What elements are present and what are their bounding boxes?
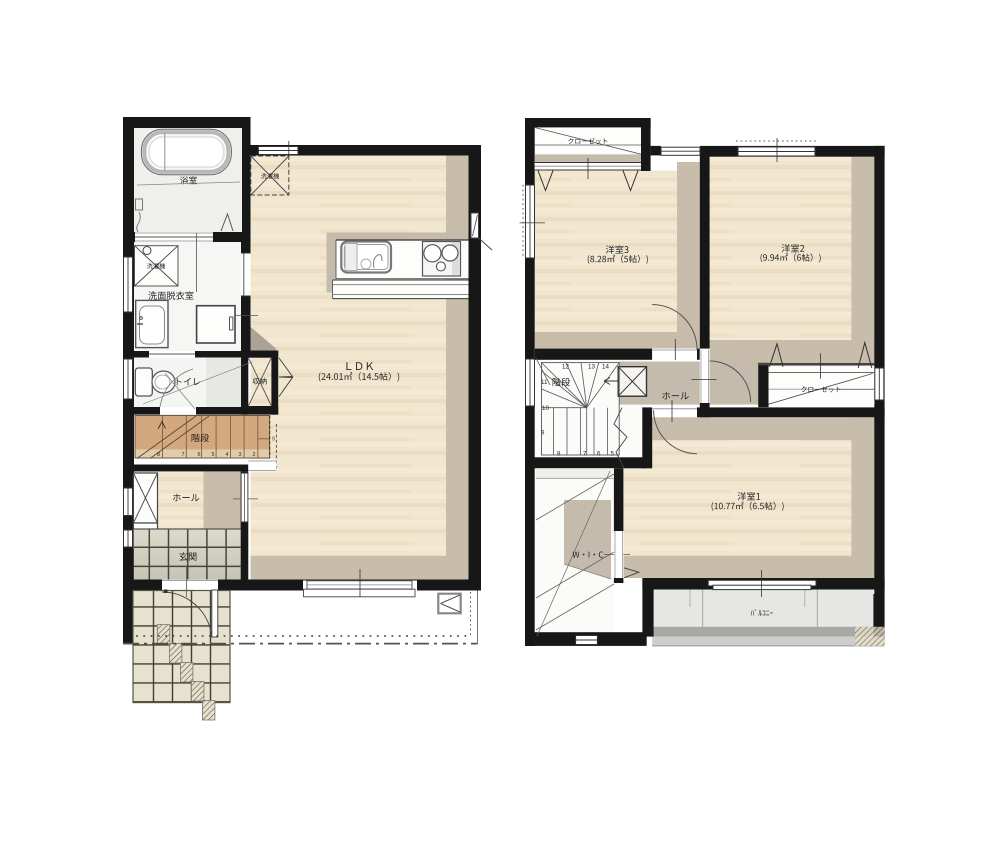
svg-text:6: 6 [597, 451, 601, 458]
svg-text:8: 8 [557, 451, 561, 458]
svg-text:9: 9 [272, 437, 275, 443]
svg-text:9: 9 [541, 430, 545, 437]
svg-text:7: 7 [182, 452, 185, 458]
svg-text:4: 4 [226, 452, 229, 458]
svg-text:13: 13 [588, 364, 595, 371]
svg-text:3: 3 [239, 452, 242, 458]
svg-text:6: 6 [198, 452, 201, 458]
svg-text:5: 5 [212, 452, 215, 458]
svg-text:10: 10 [542, 405, 549, 412]
svg-text:12: 12 [562, 364, 569, 371]
svg-text:5: 5 [611, 451, 615, 458]
svg-text:14: 14 [602, 364, 609, 371]
svg-text:8: 8 [157, 452, 160, 458]
svg-text:11: 11 [541, 379, 548, 386]
svg-text:2: 2 [253, 452, 256, 458]
svg-text:7: 7 [583, 451, 587, 458]
